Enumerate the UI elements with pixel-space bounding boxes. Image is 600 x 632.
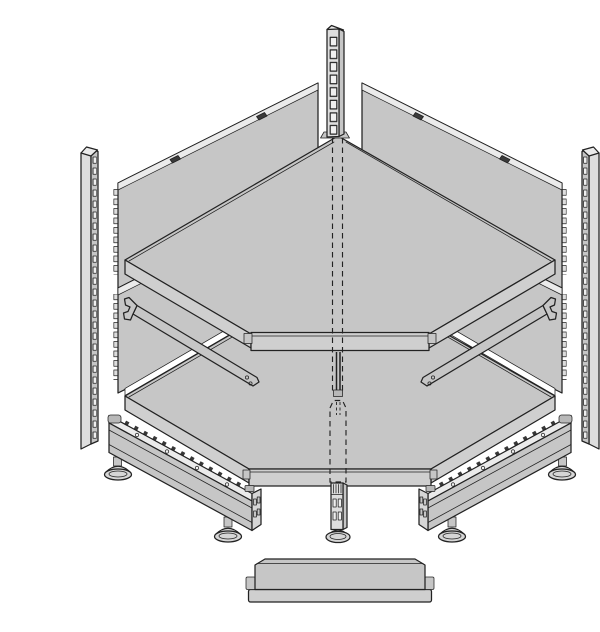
right-upright-post: Right slotted upright post xyxy=(582,147,599,449)
left-upright-slots xyxy=(92,155,96,439)
leg-inner-clip xyxy=(245,486,254,492)
center-foot: Centre foot with adjustable glide xyxy=(326,483,350,543)
front-kick-plate: Front kick plate xyxy=(246,559,434,602)
panel-edge-tabs xyxy=(114,294,119,380)
left-upright-post: Left slotted upright post xyxy=(81,147,98,449)
diagram-canvas: Left slotted upright post Right slotted … xyxy=(40,16,600,616)
right-upright-slots xyxy=(583,155,587,439)
leg-inner-clip xyxy=(426,486,435,492)
shelf-front-band xyxy=(251,333,429,351)
spigot-tip xyxy=(334,390,343,397)
kick-plate-tab xyxy=(425,577,435,590)
panel-edge-tabs xyxy=(562,294,567,380)
leg-end-cap xyxy=(559,415,572,423)
kick-plate-tab xyxy=(246,577,256,590)
back-center-upright: Slotted corner back upright xyxy=(321,26,350,139)
center-upright-slots xyxy=(330,36,338,137)
leg-end-cap xyxy=(108,415,121,423)
exploded-diagram: Exploded assembly diagram — corner gondo… xyxy=(40,16,600,616)
panel-edge-tabs xyxy=(114,189,119,275)
panel-edge-tabs xyxy=(562,189,567,275)
